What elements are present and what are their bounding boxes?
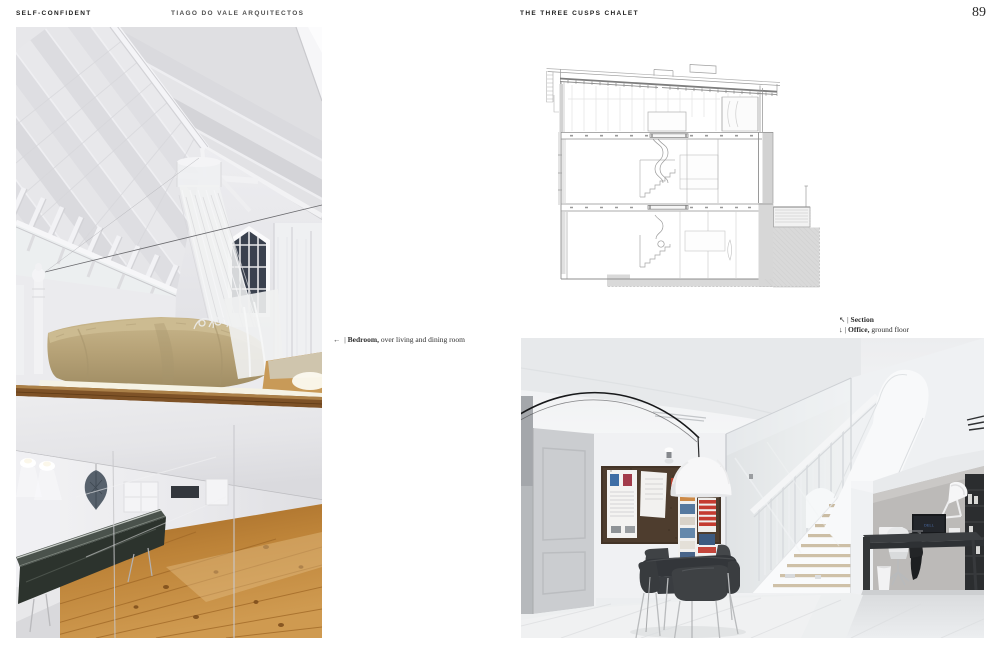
svg-text:DELL: DELL (924, 523, 935, 528)
